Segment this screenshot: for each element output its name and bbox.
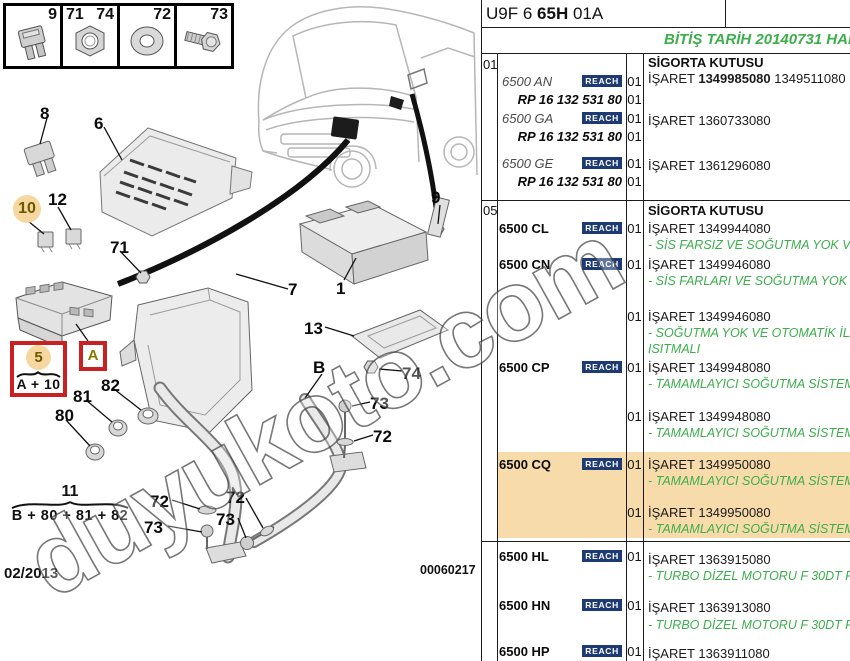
replacement-code[interactable]: RP 16 132 531 80 [518,92,622,107]
section-title: SİGORTA KUTUSU [648,203,764,218]
callout-72: 72 [226,488,245,507]
qty-cell: 01 [626,360,643,375]
part-fusebox-5 [16,282,112,348]
part-fuse-8 [24,141,59,178]
variant-note: - TURBO DİZEL MOTORU F 30DT FAP [648,618,850,632]
part-row-6500-cn[interactable]: 6500 CN [499,257,550,272]
section-title: SİGORTA KUTUSU [648,55,764,70]
variant-note: - TAMAMLAYICI SOĞUTMA SİSTEMLİ [648,522,850,536]
callout-1: 1 [336,279,345,298]
callout-81: 81 [73,387,92,406]
ref-box-a: A [79,341,107,371]
part-row-6500-an[interactable]: 6500 AN [502,74,552,89]
reach-badge[interactable]: REACH [582,645,622,657]
reach-badge[interactable]: REACH [582,75,622,87]
qty-cell: 01 [626,644,643,659]
row-divider [481,541,850,542]
part-number: 1363913080 [698,600,770,615]
part-relays-10-12 [38,229,81,252]
callout-72: 72 [373,427,392,446]
parts-catalog-page: { "page": { "title_prefix": "U9F 6 ", "t… [0,0,850,661]
callout-82: 82 [101,376,120,395]
table-border [626,53,627,661]
part-row-6500-hl[interactable]: 6500 HL [499,549,549,564]
qty-cell: 01 [626,257,643,272]
part-row-6500-cl[interactable]: 6500 CL [499,221,549,236]
part-row-6500-cp[interactable]: 6500 CP [499,360,550,375]
isaret-part-number: İŞARET 1349948080 [648,360,771,375]
isaret-part-number: İŞARET 1349948080 [648,409,771,424]
callout-73: 73 [144,518,163,537]
part-grommets [86,408,158,460]
variant-note: - TAMAMLAYICI SOĞUTMA SİSTEMİ İL [648,474,850,488]
reach-badge[interactable]: REACH [582,550,622,562]
variant-note: - SİS FARSIZ VE SOĞUTMA YOK VE TA [648,238,850,252]
isaret-part-number: İŞARET 1363915080 [648,552,771,567]
callout-74: 74 [402,364,421,383]
part-number: 1349948080 [698,409,770,424]
parts-table-panel: U9F 6 65H 01A BİTİŞ TARİH 20140731 HARİ … [481,0,850,661]
isaret-part-number: İŞARET 1349946080 [648,309,771,324]
replacement-code[interactable]: RP 16 132 531 80 [518,174,622,189]
reach-badge[interactable]: REACH [582,361,622,373]
isaret-part-number: İŞARET 1349950080 [648,457,771,472]
reach-badge[interactable]: REACH [582,458,622,470]
callout-72: 72 [150,492,169,511]
isaret-part-number: İŞARET 1349950080 [648,505,771,520]
table-border [481,0,482,661]
part-number: 1361296080 [698,158,770,173]
qty-cell: 01 [626,309,643,324]
group5-formula: A + 10 [14,378,63,391]
variant-note: - TAMAMLAYICI SOĞUTMA SİSTEMİ YO [648,426,850,440]
reach-badge[interactable]: REACH [582,222,622,234]
group11-formula: B + 80 + 81 + 82 [6,509,134,523]
part-number: 1349985080 [698,71,770,86]
variant-note: - TURBO DİZEL MOTORU F 30DT FAP [648,569,850,583]
group11-number: 11 [6,483,134,500]
qty-cell: 01 [626,129,643,144]
qty-cell: 01 [626,174,643,189]
callout-71: 71 [110,238,129,257]
part-row-6500-ga[interactable]: 6500 GA [502,111,553,126]
part-row-6500-ge[interactable]: 6500 GE [502,156,553,171]
qty-cell: 01 [626,221,643,236]
reach-badge[interactable]: REACH [582,112,622,124]
section-number: 05 [483,203,497,218]
qty-cell: 01 [626,598,643,613]
exploded-diagram-panel: 9 71 74 72 [0,0,481,661]
table-border [643,53,644,661]
callout-9: 9 [431,188,440,207]
qty-cell: 01 [626,74,643,89]
section-divider [481,200,850,201]
part-number: 1349946080 [698,257,770,272]
qty-cell: 01 [626,111,643,126]
table-border [481,27,850,28]
qty-cell: 01 [626,457,643,472]
variant-note: ISITMALI [648,342,700,356]
part-cover-6 [100,128,252,236]
part-row-6500-cq[interactable]: 6500 CQ [499,457,551,472]
isaret-part-number: İŞARET 1361296080 [648,158,771,173]
isaret-part-number: İŞARET 1349944080 [648,221,771,236]
group5-number: 5 [26,345,51,370]
isaret-part-number: İŞARET 1360733080 [648,113,771,128]
callout-13: 13 [304,319,323,338]
part-row-6500-hp[interactable]: 6500 HP [499,644,550,659]
qty-cell: 01 [626,92,643,107]
part-number: 1363915080 [698,552,770,567]
part-number: 1349946080 [698,309,770,324]
part-bracket-b [160,388,366,563]
callout-73: 73 [370,394,389,413]
part-number: 1349950080 [698,457,770,472]
part-number: 1349950080 [698,505,770,520]
callout-10: 10 [13,195,41,223]
group-box-5: 5 A + 10 [10,341,67,397]
callout-8: 8 [40,104,49,123]
end-date-notice: BİTİŞ TARİH 20140731 HARİ [664,31,850,48]
variant-note: - SOĞUTMA YOK VE OTOMATİK İLAVE [648,326,850,340]
diagram-artwork [0,0,481,661]
table-border [497,53,498,661]
group-11: 11 B + 80 + 81 + 82 [6,483,134,523]
variant-note: - SİS FARLARI VE SOĞUTMA YOK [648,274,847,288]
callout-6: 6 [94,114,103,133]
part-row-6500-hn[interactable]: 6500 HN [499,598,550,613]
part-module-1 [300,197,449,284]
part-number: 1360733080 [698,113,770,128]
part-number: 1349944080 [698,221,770,236]
isaret-part-number: İŞARET 1349946080 [648,257,771,272]
part-number: 1349948080 [698,360,770,375]
table-border [725,0,726,27]
reach-badge[interactable]: REACH [582,599,622,611]
callout-73: 73 [216,510,235,529]
qty-cell: 01 [626,549,643,564]
catalog-date: 02/2013 [4,565,58,582]
isaret-part-number: İŞARET 1363911080 [648,646,770,661]
isaret-part-number: İŞARET 1349985080 1349511080 [648,71,846,86]
callout-80: 80 [55,406,74,425]
callout-7: 7 [288,280,297,299]
reach-badge[interactable]: REACH [582,157,622,169]
callout-b: B [313,358,325,377]
callout-12: 12 [48,190,67,209]
isaret-part-number: İŞARET 1363913080 [648,600,771,615]
qty-cell: 01 [626,409,643,424]
section-number: 01 [483,57,497,72]
part-plate-13 [352,310,448,358]
variant-note: - TAMAMLAYICI SOĞUTMA SİSTEMİ YO [648,377,850,391]
qty-cell: 01 [626,156,643,171]
replacement-code[interactable]: RP 16 132 531 80 [518,129,622,144]
catalog-code-title: U9F 6 65H 01A [486,4,603,24]
drawing-number: 00060217 [420,563,476,577]
reach-badge[interactable]: REACH [582,258,622,270]
part-number: 1363911080 [698,646,769,661]
van-sketch [258,7,477,187]
table-border [481,53,850,54]
qty-cell: 01 [626,505,643,520]
